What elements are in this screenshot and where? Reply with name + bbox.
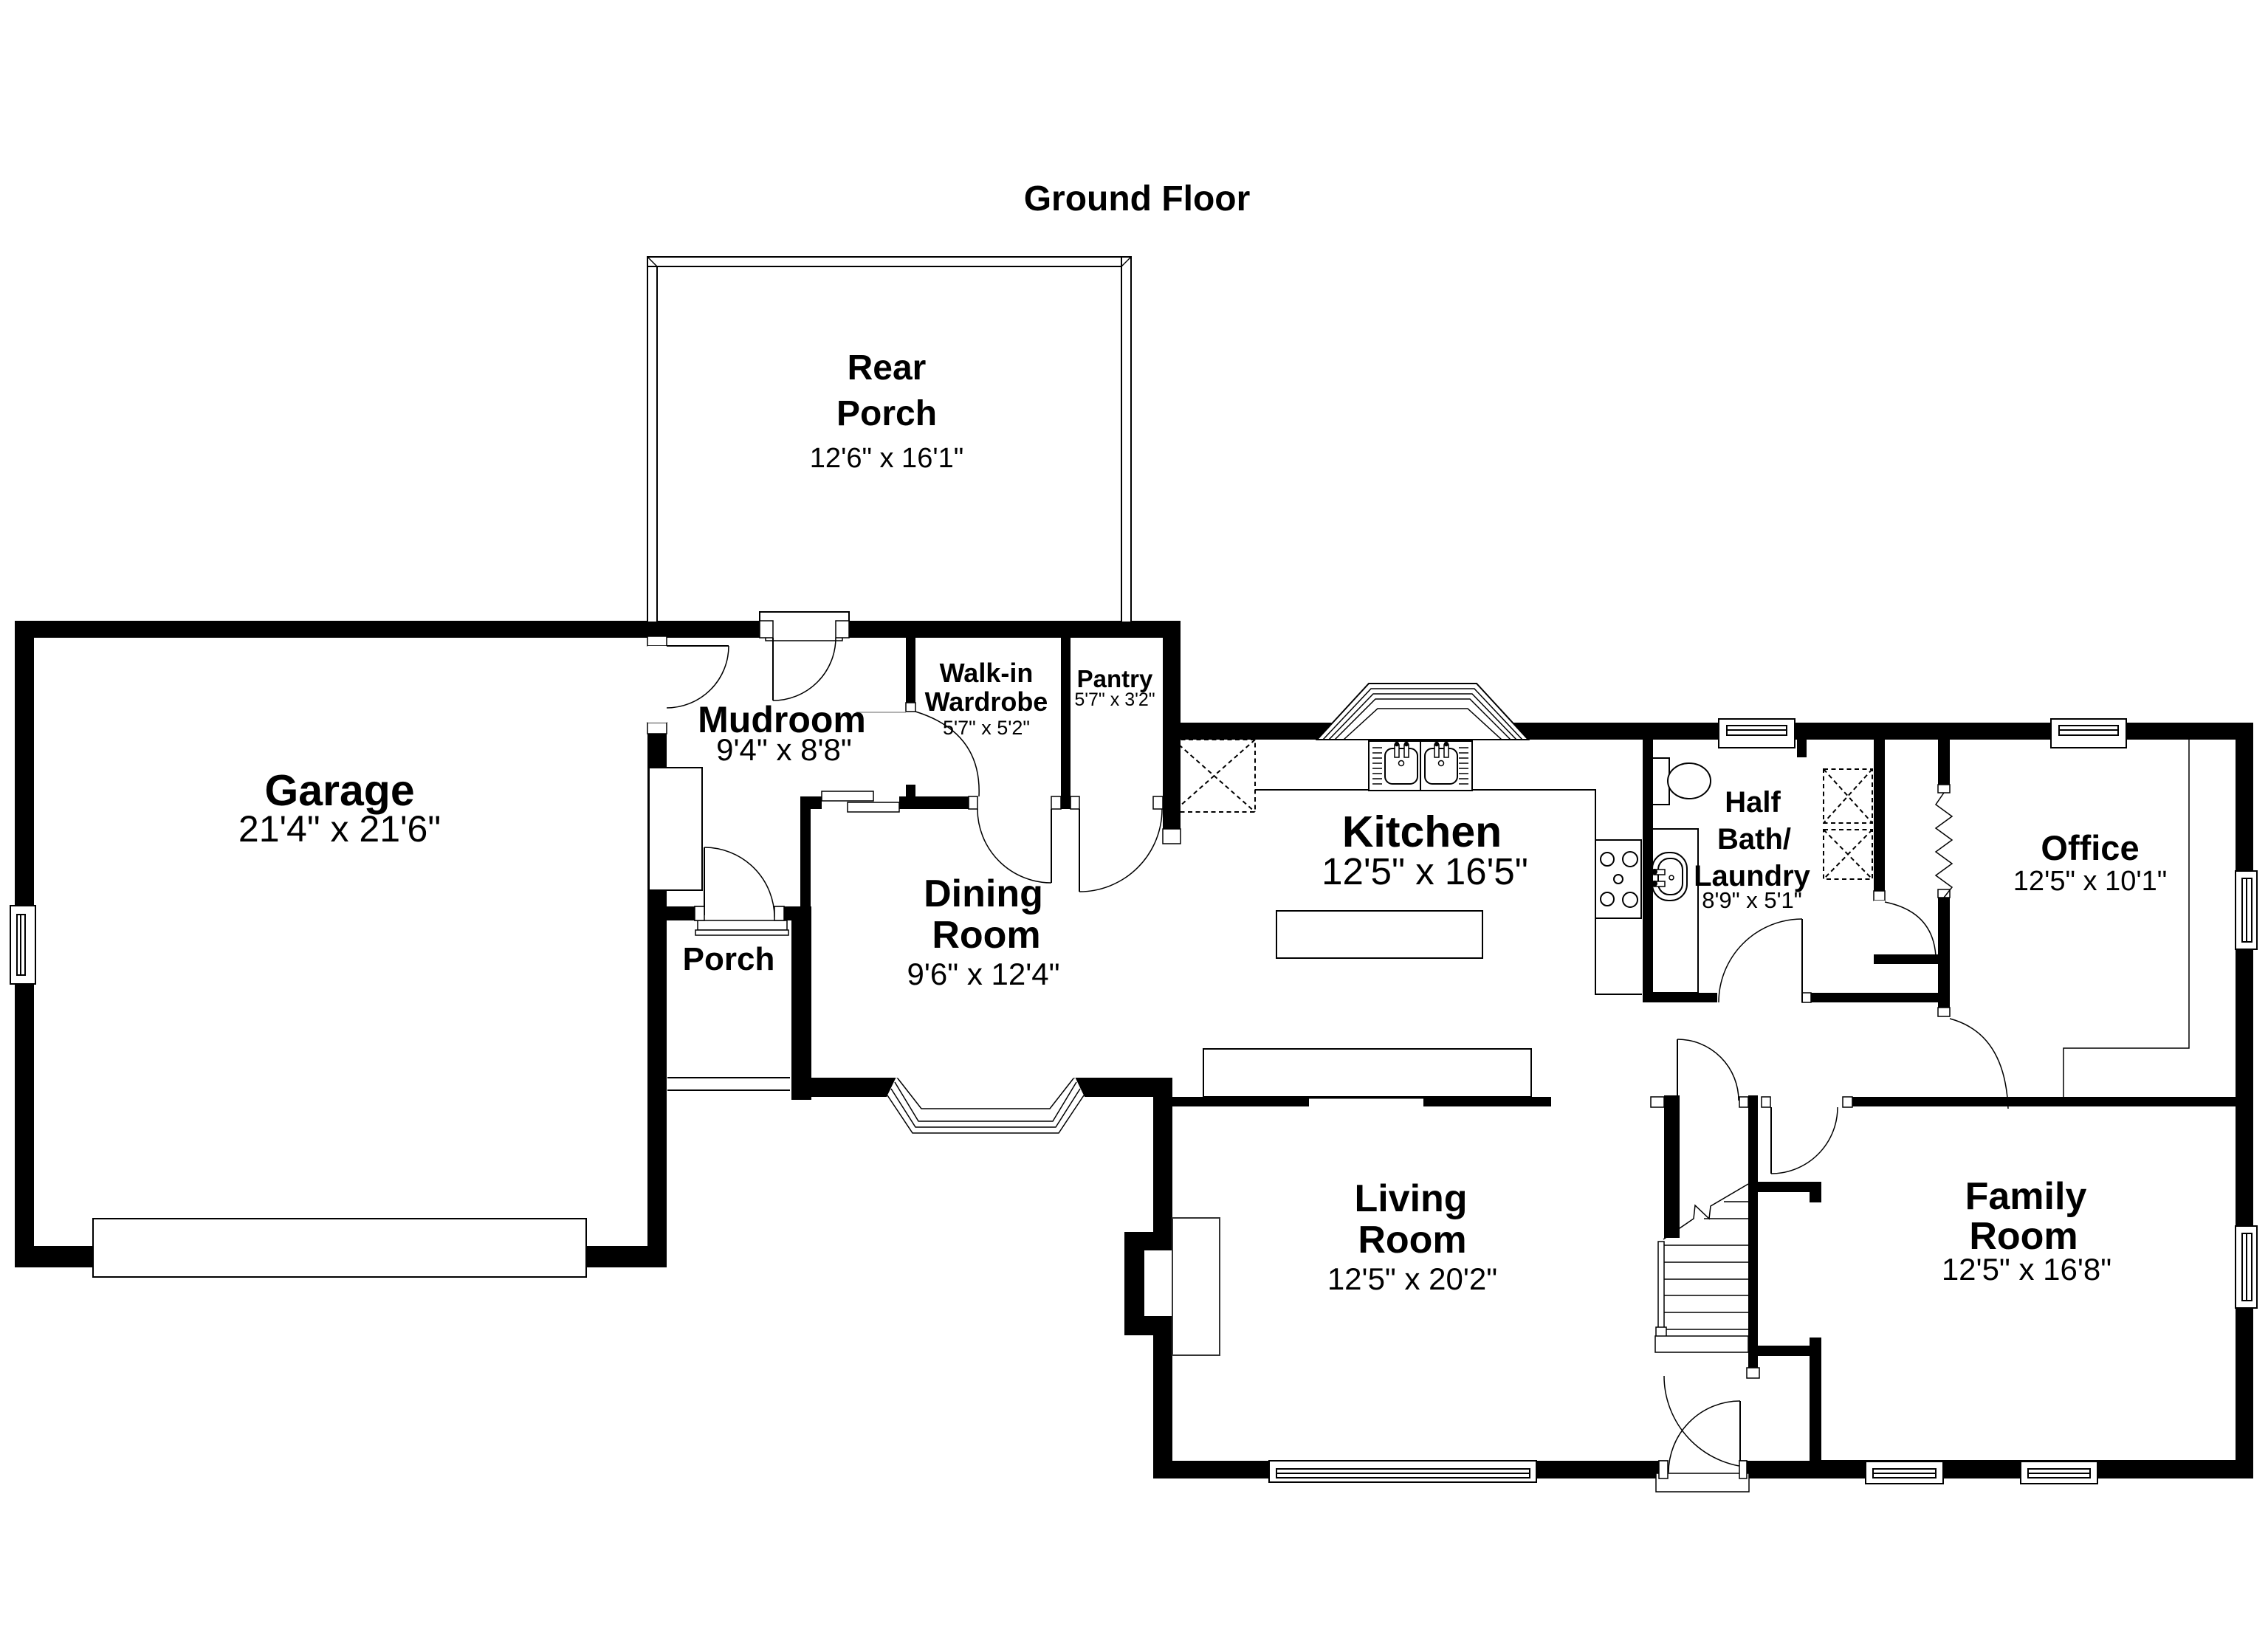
svg-text:Room: Room [932, 914, 1040, 957]
svg-text:9'6" x 12'4": 9'6" x 12'4" [907, 957, 1060, 991]
svg-text:8'9" x 5'1": 8'9" x 5'1" [1702, 887, 1802, 913]
svg-text:5'7" x 5'2": 5'7" x 5'2" [943, 717, 1030, 739]
svg-text:12'5" x 16'5": 12'5" x 16'5" [1322, 850, 1528, 892]
svg-text:Bath/: Bath/ [1717, 823, 1791, 856]
svg-text:12'5" x 10'1": 12'5" x 10'1" [2013, 866, 2167, 897]
svg-text:Living: Living [1354, 1177, 1467, 1220]
svg-text:Pantry: Pantry [1077, 665, 1153, 692]
svg-text:Walk-in: Walk-in [940, 658, 1034, 688]
svg-text:Kitchen: Kitchen [1342, 808, 1502, 856]
svg-text:Room: Room [1358, 1219, 1466, 1261]
svg-text:21'4" x 21'6": 21'4" x 21'6" [238, 808, 441, 850]
svg-text:12'5" x 20'2": 12'5" x 20'2" [1327, 1261, 1497, 1296]
svg-text:Ground Floor: Ground Floor [1024, 179, 1251, 218]
svg-text:Office: Office [2041, 828, 2139, 867]
svg-text:Dining: Dining [924, 872, 1043, 915]
svg-text:5'7" x 3'2": 5'7" x 3'2" [1074, 689, 1155, 710]
svg-text:Wardrobe: Wardrobe [925, 686, 1048, 717]
svg-text:Family: Family [1965, 1175, 2087, 1218]
svg-text:Rear: Rear [848, 348, 927, 388]
svg-text:12'6" x 16'1": 12'6" x 16'1" [810, 443, 963, 474]
svg-text:Porch: Porch [836, 394, 937, 433]
svg-text:12'5" x 16'8": 12'5" x 16'8" [1942, 1252, 2111, 1287]
svg-text:Porch: Porch [683, 941, 775, 977]
svg-text:Half: Half [1725, 786, 1781, 819]
svg-text:9'4" x 8'8": 9'4" x 8'8" [716, 732, 852, 767]
